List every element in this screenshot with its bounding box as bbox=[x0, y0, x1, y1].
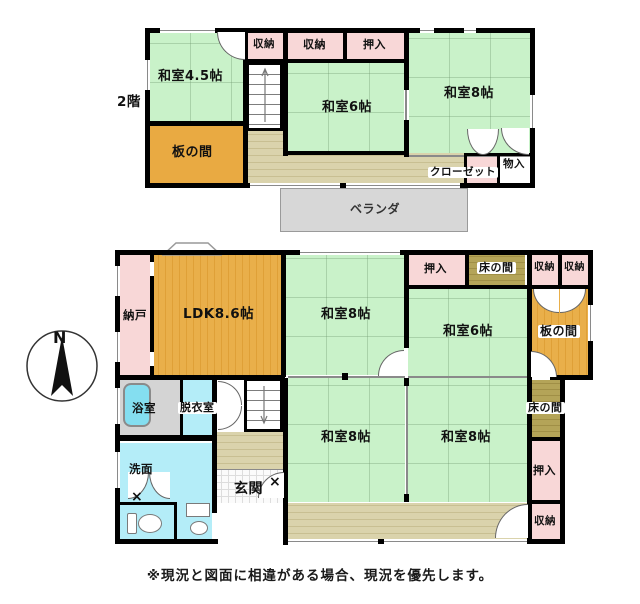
window-marker bbox=[115, 266, 120, 296]
compass-north-label: N bbox=[53, 330, 67, 347]
corridor-2f-left bbox=[246, 131, 283, 183]
sliding-door-line bbox=[405, 90, 407, 120]
corridor-1f-engawa bbox=[288, 503, 528, 540]
wall-segment bbox=[404, 28, 409, 90]
room-label: 収納 bbox=[564, 263, 585, 274]
wall-nub bbox=[404, 494, 409, 502]
room-label: 収納 bbox=[303, 39, 326, 51]
wall-nub bbox=[404, 378, 409, 386]
wall-segment bbox=[283, 28, 288, 156]
toilet-tank bbox=[127, 513, 137, 534]
room-label: 和室6帖 bbox=[443, 325, 493, 339]
wall-segment bbox=[465, 252, 469, 287]
wall-segment bbox=[246, 59, 404, 63]
veranda-label: ベランダ bbox=[350, 203, 400, 216]
room-label: 玄関 bbox=[234, 482, 263, 497]
door-opening bbox=[150, 352, 154, 366]
room-label: 押入 bbox=[363, 39, 386, 51]
window-marker bbox=[420, 28, 434, 33]
room-label: 収納 bbox=[534, 516, 556, 527]
room-label: 収納 bbox=[534, 263, 555, 274]
wall-segment bbox=[145, 28, 150, 188]
window-marker bbox=[300, 250, 400, 255]
wall-segment bbox=[174, 502, 177, 539]
genkan-line bbox=[217, 469, 283, 470]
wall-segment bbox=[283, 378, 288, 545]
window-marker bbox=[530, 95, 535, 128]
floorplan-canvas: 2階 和室4.5帖 収納 収納 押入 和室6帖 和室8帖 板の間 クローゼット … bbox=[0, 0, 640, 604]
wall-segment bbox=[343, 30, 347, 61]
window-marker bbox=[145, 60, 150, 90]
wall-segment bbox=[283, 151, 409, 155]
wall-segment bbox=[145, 183, 250, 188]
room-label: 和室6帖 bbox=[322, 101, 372, 115]
wall-nub bbox=[342, 373, 348, 380]
room-label: 床の間 bbox=[477, 262, 516, 274]
wall-segment bbox=[118, 435, 215, 441]
door-mark: × bbox=[269, 475, 281, 490]
wall-segment bbox=[528, 500, 565, 504]
corridor-1f-hall bbox=[217, 432, 283, 470]
wall-segment bbox=[120, 502, 177, 505]
room-label: 床の間 bbox=[526, 402, 565, 414]
stairs-down-arrow bbox=[260, 384, 268, 428]
room-label: 和室8帖 bbox=[441, 431, 491, 445]
room-label: 和室8帖 bbox=[321, 431, 371, 445]
room-label: 洗面 bbox=[129, 463, 153, 475]
window-marker bbox=[115, 388, 120, 424]
room-label: 物入 bbox=[503, 159, 525, 170]
room-label: 和室8帖 bbox=[321, 308, 371, 322]
window-marker bbox=[115, 332, 120, 362]
wall-segment bbox=[148, 121, 245, 126]
wall-segment bbox=[115, 375, 285, 380]
room-label: 押入 bbox=[533, 465, 556, 477]
room-label: 和室8帖 bbox=[444, 87, 494, 101]
room-label: 収納 bbox=[253, 39, 275, 50]
disclaimer-caption: ※現況と図面に相違がある場合、現況を優先します。 bbox=[0, 564, 640, 584]
washbasin-counter bbox=[186, 503, 210, 517]
wall-segment bbox=[528, 437, 565, 441]
wall-segment bbox=[115, 539, 218, 544]
room-label: 和室4.5帖 bbox=[158, 70, 223, 84]
window-marker bbox=[588, 305, 593, 341]
wall-segment bbox=[558, 250, 562, 285]
window-marker bbox=[115, 452, 120, 488]
room-label: 板の間 bbox=[538, 325, 580, 338]
room-label: 脱衣室 bbox=[178, 402, 217, 414]
sliding-door-line bbox=[408, 376, 527, 378]
sliding-door-line bbox=[406, 378, 408, 502]
door-mark: × bbox=[131, 490, 143, 505]
room-label: 浴室 bbox=[132, 402, 156, 414]
toilet-bowl bbox=[138, 514, 162, 533]
window-marker bbox=[464, 28, 476, 33]
wall-segment bbox=[404, 250, 409, 348]
room-label: LDK8.6帖 bbox=[183, 307, 254, 321]
stairs-up-arrow bbox=[261, 66, 269, 124]
room-label: 押入 bbox=[424, 263, 447, 275]
wall-segment bbox=[281, 250, 286, 377]
wall-segment bbox=[528, 539, 565, 544]
room-label: クローゼット bbox=[428, 167, 498, 178]
room-label: 板の間 bbox=[172, 146, 213, 160]
door-opening bbox=[150, 262, 154, 276]
window-marker bbox=[160, 28, 215, 33]
floor-label-2f: 2階 bbox=[117, 95, 141, 109]
room-label: 納戸 bbox=[123, 309, 147, 321]
wall-nub bbox=[378, 539, 384, 544]
window-marker bbox=[288, 539, 528, 544]
wall-segment bbox=[212, 378, 217, 513]
washbasin-bowl bbox=[190, 521, 208, 535]
